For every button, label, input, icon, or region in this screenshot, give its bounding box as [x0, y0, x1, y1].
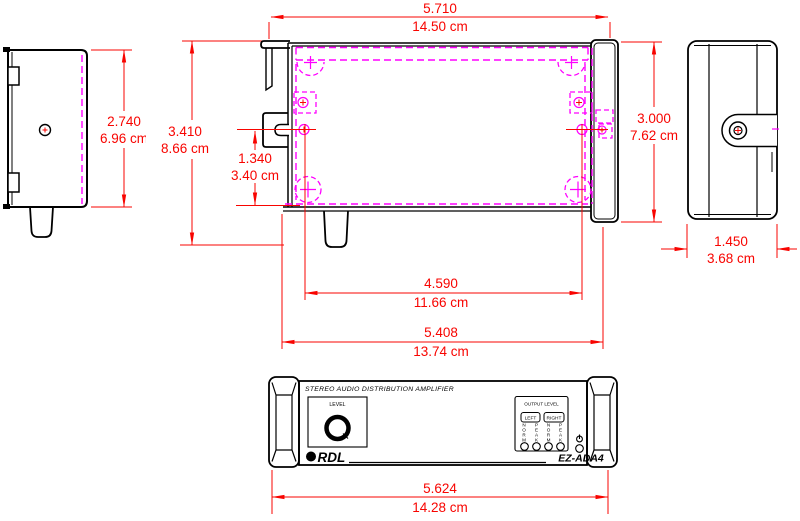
right-side-view [688, 41, 779, 219]
model-number: EZ-ADA4 [558, 453, 604, 465]
dim-top-width-cm: 14.50 cm [412, 19, 468, 34]
dim-top-width-inches: 5.710 [423, 1, 457, 16]
left-view-tab-lower [8, 173, 19, 192]
dim-chassis-width-cm: 13.74 cm [413, 344, 469, 359]
meter-label-norm-left: NORM [522, 423, 526, 443]
dim-end-panel-height-inches: 3.000 [637, 111, 671, 126]
dim-left-body-height: 2.740 6.96 cm [91, 50, 153, 207]
dim-hole-spacing-cm: 11.66 cm [414, 295, 469, 310]
brand-logo: RDL [318, 450, 346, 465]
dim-left-body-height-inches: 2.740 [107, 114, 141, 129]
dim-slot-to-base-cm: 3.40 cm [231, 168, 279, 183]
left-view-foot [30, 207, 53, 237]
front-panel-heading: STEREO AUDIO DISTRIBUTION AMPLIFIER [305, 386, 454, 393]
top-view-foot [324, 211, 348, 247]
front-panel-view: STEREO AUDIO DISTRIBUTION AMPLIFIER LEVE… [269, 377, 617, 467]
dim-front-panel-width-cm: 14.28 cm [412, 500, 468, 515]
led-peak-left [533, 443, 541, 451]
hidden-lines [285, 48, 613, 205]
mounting-ear [266, 48, 272, 90]
led-peak-right [557, 443, 565, 451]
dim-slot-to-base-inches: 1.340 [238, 151, 272, 166]
output-level-label: OUTPUT LEVEL [524, 402, 559, 407]
left-button-label: LEFT [525, 416, 537, 422]
level-label: LEVEL [329, 402, 345, 408]
dim-end-panel-height-cm: 7.62 cm [630, 128, 678, 143]
left-view-body-outline [8, 50, 87, 207]
dim-front-panel-width-inches: 5.624 [423, 481, 457, 496]
meter-label-peak-left: PEAK [535, 423, 539, 443]
technical-drawing-page: 2.740 6.96 cm 3.410 8.66 cm [0, 0, 800, 521]
dim-depth-cm: 3.68 cm [707, 251, 755, 266]
top-view [237, 40, 618, 300]
brand-dot-icon [306, 452, 316, 462]
power-icon [577, 435, 583, 442]
corner-mark [3, 47, 10, 52]
dimension-drawing: 2.740 6.96 cm 3.410 8.66 cm [0, 0, 800, 521]
led-norm-left [521, 443, 529, 451]
meter-label-norm-right: NORM [547, 423, 551, 443]
dim-front-panel-width: 5.624 14.28 cm [272, 470, 608, 515]
front-left-end-cap [269, 377, 299, 467]
right-button-label: RIGHT [547, 416, 562, 422]
power-led [576, 445, 584, 453]
dim-overall-height-inches: 3.410 [168, 124, 202, 139]
center-mark [43, 128, 48, 133]
dim-depth: 1.450 3.68 cm [661, 224, 797, 266]
led-norm-right [545, 443, 553, 451]
dim-top-width: 5.710 14.50 cm [269, 1, 610, 39]
left-side-view [3, 47, 87, 237]
dim-depth-inches: 1.450 [714, 234, 748, 249]
dim-hole-spacing-inches: 4.590 [424, 276, 458, 291]
left-view-tab-upper [8, 67, 19, 85]
right-end-cap-top-view [591, 40, 618, 222]
dim-chassis-width-inches: 5.408 [424, 325, 458, 340]
corner-mark [3, 204, 10, 209]
mounting-ear-fold [261, 41, 290, 48]
dim-mounting-hole-spacing: 4.590 11.66 cm [305, 276, 582, 310]
meter-label-peak-right: PEAK [559, 423, 563, 443]
dim-end-panel-height: 3.000 7.62 cm [621, 42, 682, 222]
dim-left-body-height-cm: 6.96 cm [100, 131, 148, 146]
dim-overall-height-cm: 8.66 cm [161, 141, 209, 156]
